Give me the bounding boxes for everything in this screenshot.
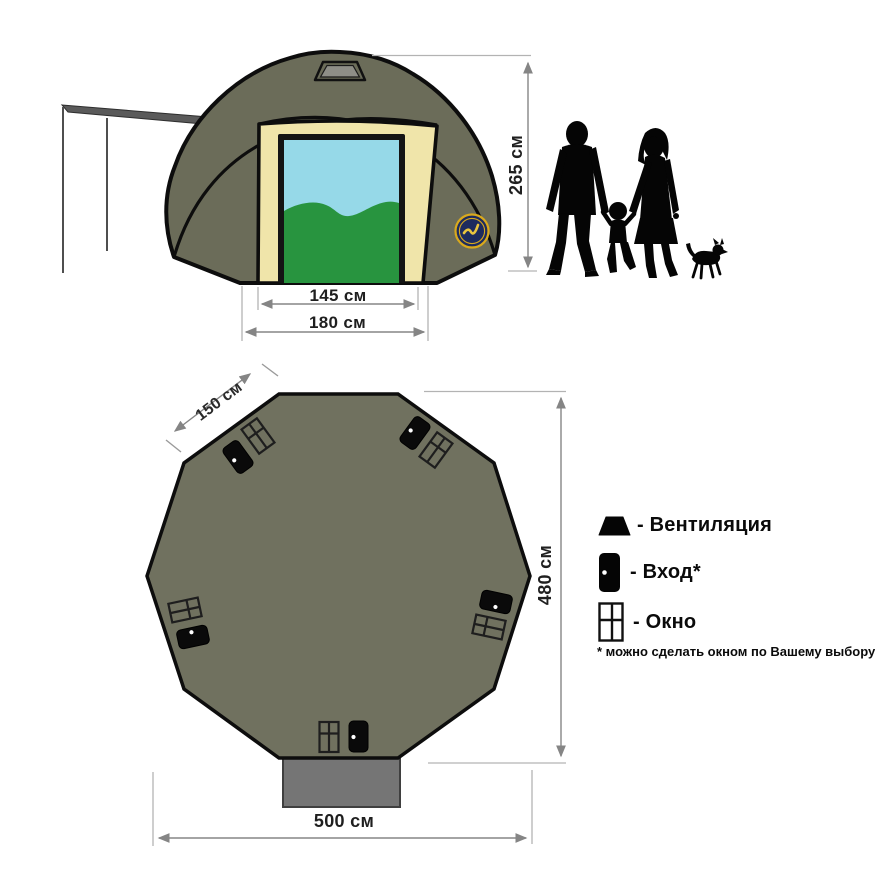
- dog-silhouette: [686, 238, 728, 278]
- vestibule: [283, 752, 400, 807]
- brand-logo-badge: [456, 215, 489, 248]
- tent-front-view: [166, 52, 499, 283]
- entrance-door-icon: [598, 552, 621, 593]
- floor-plan: [147, 394, 530, 807]
- man-silhouette: [546, 121, 609, 277]
- dimension-label-plan-width: 500 см: [264, 811, 424, 832]
- legend-label-entrance: - Вход*: [630, 561, 701, 584]
- dimension-label-height: 265 см: [505, 121, 527, 209]
- window-icon: [598, 602, 624, 642]
- legend-item-entrance: - Вход*: [598, 552, 701, 593]
- child-silhouette: [603, 202, 636, 273]
- legend-item-ventilation: - Вентиляция: [598, 514, 772, 537]
- dimension-label-plan-depth: 480 см: [534, 531, 556, 619]
- tent-dimensions-diagram: 145 см 180 см 265 см 480 см 500 см 150 с…: [0, 0, 875, 875]
- legend-note: * можно сделать окном по Вашему выбору: [597, 644, 875, 659]
- diagram-canvas: [0, 0, 875, 875]
- floor-plan-outline: [147, 394, 530, 758]
- legend-label-ventilation: - Вентиляция: [637, 514, 772, 537]
- vent-icon: [598, 516, 631, 536]
- legend-label-window: - Окно: [633, 611, 696, 634]
- plan-door-icon: [349, 721, 368, 752]
- woman-silhouette: [629, 128, 679, 278]
- dimension-label-door-width: 145 см: [258, 286, 418, 306]
- roof-vent-icon: [315, 62, 365, 80]
- dimension-label-base-width: 180 см: [247, 313, 428, 333]
- family-silhouette: [546, 121, 728, 278]
- legend-item-window: - Окно: [598, 602, 696, 642]
